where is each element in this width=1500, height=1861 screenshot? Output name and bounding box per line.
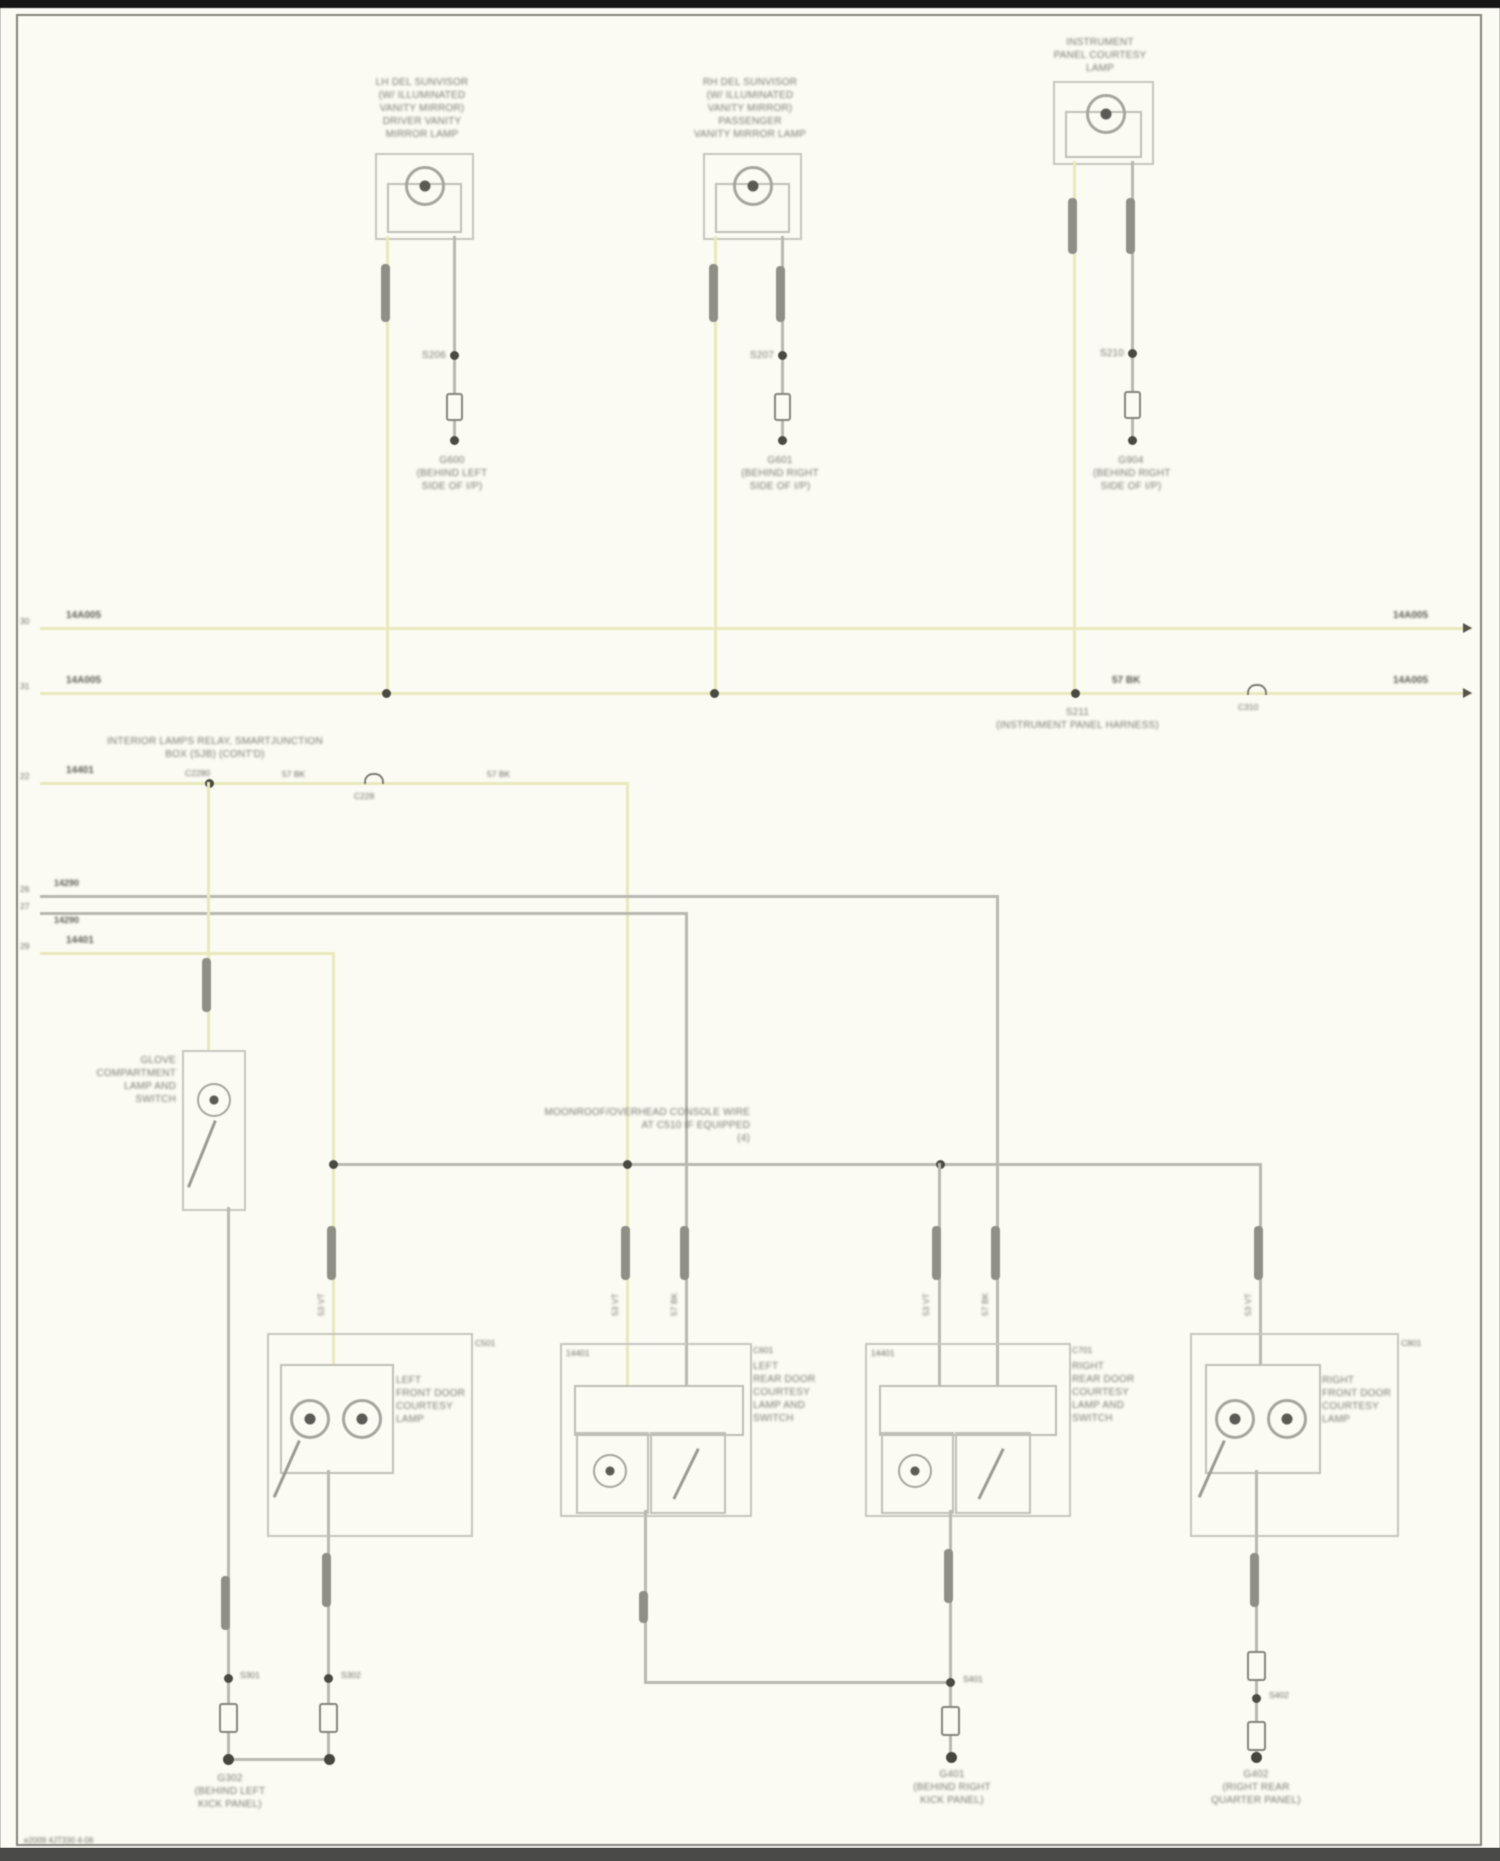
- splice-dot: [623, 1160, 632, 1169]
- wire-code: 53 VT: [316, 1293, 326, 1316]
- wire-code: 53 VT: [1243, 1293, 1253, 1316]
- inline-connector: [1250, 1553, 1259, 1607]
- wiring-diagram-page: LH DEL SUNVISOR(W/ ILLUMINATED VANITY MI…: [0, 0, 1500, 1861]
- component-label-lr-door: LEFTREAR DOOR COURTESYLAMP AND SWITCH: [753, 1360, 833, 1425]
- lamp-icon: [1086, 94, 1126, 134]
- splice-label: S207: [726, 349, 774, 362]
- component-label-ip-lamp: INSTRUMENTPANEL COURTESY LAMP: [1040, 36, 1160, 75]
- lamp-icon: [1215, 1399, 1255, 1439]
- rail-courtesy-feed-drop: [332, 952, 335, 1364]
- connector-arc-icon: [1247, 684, 1267, 695]
- lamp-icon: [197, 1083, 231, 1117]
- inline-connector: [932, 1226, 941, 1280]
- component-label-vanity-right: RH DEL SUNVISOR(W/ ILLUMINATED VANITY MI…: [683, 76, 817, 141]
- inline-connector: [1247, 1721, 1266, 1751]
- ground-dot: [324, 1754, 335, 1765]
- wire-code: 14A005: [1393, 675, 1428, 686]
- page-continuation-tick: 26: [20, 884, 29, 894]
- rail-courtesy-feed: [40, 952, 335, 955]
- wire-code: 57 BK: [487, 769, 510, 779]
- connector-strip: [574, 1385, 744, 1436]
- splice-label: S210: [1076, 347, 1124, 360]
- connector-label: C228: [354, 791, 374, 801]
- ground-label: G302(BEHIND LEFTKICK PANEL): [184, 1772, 276, 1811]
- splice-dot: [224, 1674, 233, 1683]
- inline-connector: [621, 1226, 630, 1280]
- ground-label: G600(BEHIND LEFTSIDE OF I/P): [412, 454, 492, 493]
- ground-dot: [450, 436, 459, 445]
- inline-connector: [219, 1703, 238, 1733]
- component-box-glove-lamp: [182, 1050, 246, 1211]
- lamp-icon: [342, 1399, 382, 1439]
- ground-dot: [1251, 1752, 1262, 1763]
- inline-connector: [381, 264, 390, 322]
- inline-connector: [221, 1576, 230, 1630]
- wire-code: 14A005: [66, 675, 101, 686]
- splice-label: S206: [398, 349, 446, 362]
- inline-connector: [639, 1591, 648, 1623]
- inline-connector: [1068, 198, 1077, 254]
- ground-label: G401(BEHIND RIGHTKICK PANEL): [906, 1768, 998, 1807]
- rail-sjb: [40, 782, 629, 785]
- splice-dot: [778, 351, 787, 360]
- connector-label: 14401: [566, 1348, 590, 1358]
- connector-strip: [879, 1385, 1057, 1436]
- distribution-rail: [333, 1163, 1262, 1166]
- splice-label: S401: [963, 1674, 983, 1684]
- scan-bottom-bar: [0, 1848, 1500, 1861]
- page-border: [16, 14, 1482, 1846]
- connector-label: C501: [475, 1338, 495, 1348]
- wire-code: 57 BK: [282, 769, 305, 779]
- inline-connector: [944, 1549, 953, 1603]
- rail-switch-a-drop: [996, 895, 999, 1385]
- wire-code: 14290: [54, 915, 79, 925]
- splice-dot: [710, 689, 719, 698]
- wire-code: 14290: [54, 878, 79, 888]
- page-continuation-tick: 31: [20, 681, 29, 691]
- lamp-icon: [733, 166, 773, 206]
- lamp-icon: [593, 1454, 627, 1488]
- connector-label: C701: [1072, 1345, 1092, 1355]
- wire-a4-ground: [1255, 1470, 1258, 1760]
- rail-sjb-drop: [626, 782, 629, 1385]
- splice-dot: [450, 351, 459, 360]
- inline-connector: [327, 1226, 336, 1280]
- inline-connector: [776, 266, 785, 322]
- connector-label: C601: [753, 1345, 773, 1355]
- splice-dot: [1252, 1694, 1261, 1703]
- ground-label: G601(BEHIND RIGHTSIDE OF I/P): [740, 454, 820, 493]
- wire-a2-a3-join: [644, 1681, 954, 1684]
- page-footer-code: e2009 4JT330 4-06: [24, 1836, 93, 1845]
- splice-label: S211(INSTRUMENT PANEL HARNESS): [995, 706, 1160, 732]
- inline-connector: [1254, 1226, 1263, 1280]
- splice-label: S301: [240, 1670, 260, 1680]
- splice-label: S402: [1269, 1690, 1289, 1700]
- diagram-canvas: LH DEL SUNVISOR(W/ ILLUMINATED VANITY MI…: [0, 8, 1500, 1848]
- inline-connector: [1126, 198, 1135, 254]
- wire-code: 14401: [66, 765, 94, 776]
- inline-connector: [709, 264, 718, 322]
- wire-code: 53 VT: [921, 1293, 931, 1316]
- splice-dot: [382, 689, 391, 698]
- wire-code: 14A005: [1393, 610, 1428, 621]
- bus-wire-1: [40, 627, 1472, 630]
- wire-code: 14A005: [66, 610, 101, 621]
- wire-code: 57 BK: [1112, 675, 1140, 686]
- page-continuation-tick: 29: [20, 941, 29, 951]
- inline-connector: [941, 1706, 960, 1736]
- ground-dot: [223, 1754, 234, 1765]
- continuation-arrow-icon: [1463, 623, 1472, 633]
- wire-code: 57 BK: [980, 1293, 990, 1316]
- splice-dot: [946, 1678, 955, 1687]
- ground-dot: [778, 436, 787, 445]
- component-label-vanity-left: LH DEL SUNVISOR(W/ ILLUMINATED VANITY MI…: [352, 76, 492, 141]
- splice-dot: [329, 1160, 338, 1169]
- ground-label: G904(BEHIND RIGHTSIDE OF I/P): [1093, 454, 1169, 493]
- connector-arc-icon: [364, 773, 384, 784]
- rail-switch-a: [40, 895, 999, 898]
- inline-connector: [991, 1226, 1000, 1280]
- component-label-rr-door: RIGHTREAR DOOR COURTESYLAMP AND SWITCH: [1072, 1360, 1154, 1425]
- inline-connector: [1124, 391, 1141, 419]
- splice-label: S302: [341, 1670, 361, 1680]
- component-label-lf-door: LEFTFRONT DOOR COURTESYLAMP: [396, 1374, 468, 1426]
- inline-connector: [202, 958, 211, 1012]
- lamp-icon: [1267, 1399, 1307, 1439]
- page-continuation-tick: 30: [20, 616, 29, 626]
- inline-connector: [322, 1553, 331, 1607]
- lamp-icon: [898, 1454, 932, 1488]
- wire-ground-join: [228, 1758, 331, 1761]
- ground-label: G402(RIGHT REARQUARTER PANEL): [1210, 1768, 1302, 1807]
- rail-switch-b-drop: [685, 912, 688, 1385]
- ground-dot: [1128, 436, 1137, 445]
- page-continuation-tick: 22: [20, 771, 29, 781]
- component-label-glove: GLOVECOMPARTMENT LAMP ANDSWITCH: [80, 1054, 176, 1106]
- page-continuation-tick: 27: [20, 901, 29, 911]
- connector-label: 14401: [871, 1348, 895, 1358]
- fuse-label: C2280: [185, 768, 210, 778]
- component-label-rf-door: RIGHTFRONT DOOR COURTESYLAMP: [1322, 1374, 1394, 1426]
- connector-label: C310: [1238, 702, 1258, 712]
- splice-dot: [1128, 349, 1137, 358]
- inline-connector: [774, 393, 791, 421]
- lamp-icon: [290, 1399, 330, 1439]
- wire-code: 53 VT: [610, 1293, 620, 1316]
- splice-dot: [324, 1674, 333, 1683]
- rail-switch-b: [40, 912, 688, 915]
- inline-connector: [446, 393, 463, 421]
- diagram-note: MOONROOF/OVERHEAD CONSOLE WIREAT C510 IF…: [480, 1106, 750, 1145]
- wire-code: 14401: [66, 935, 94, 946]
- inline-connector: [1247, 1651, 1266, 1681]
- sjb-label: INTERIOR LAMPS RELAY, SMARTJUNCTIONBOX (…: [55, 735, 375, 761]
- ground-dot: [946, 1752, 957, 1763]
- inline-connector: [680, 1226, 689, 1280]
- connector-label: C801: [1401, 1338, 1421, 1348]
- continuation-arrow-icon: [1463, 688, 1472, 698]
- lamp-icon: [405, 166, 445, 206]
- wire-code: 57 BK: [669, 1293, 679, 1316]
- inline-connector: [319, 1703, 338, 1733]
- splice-dot: [1071, 689, 1080, 698]
